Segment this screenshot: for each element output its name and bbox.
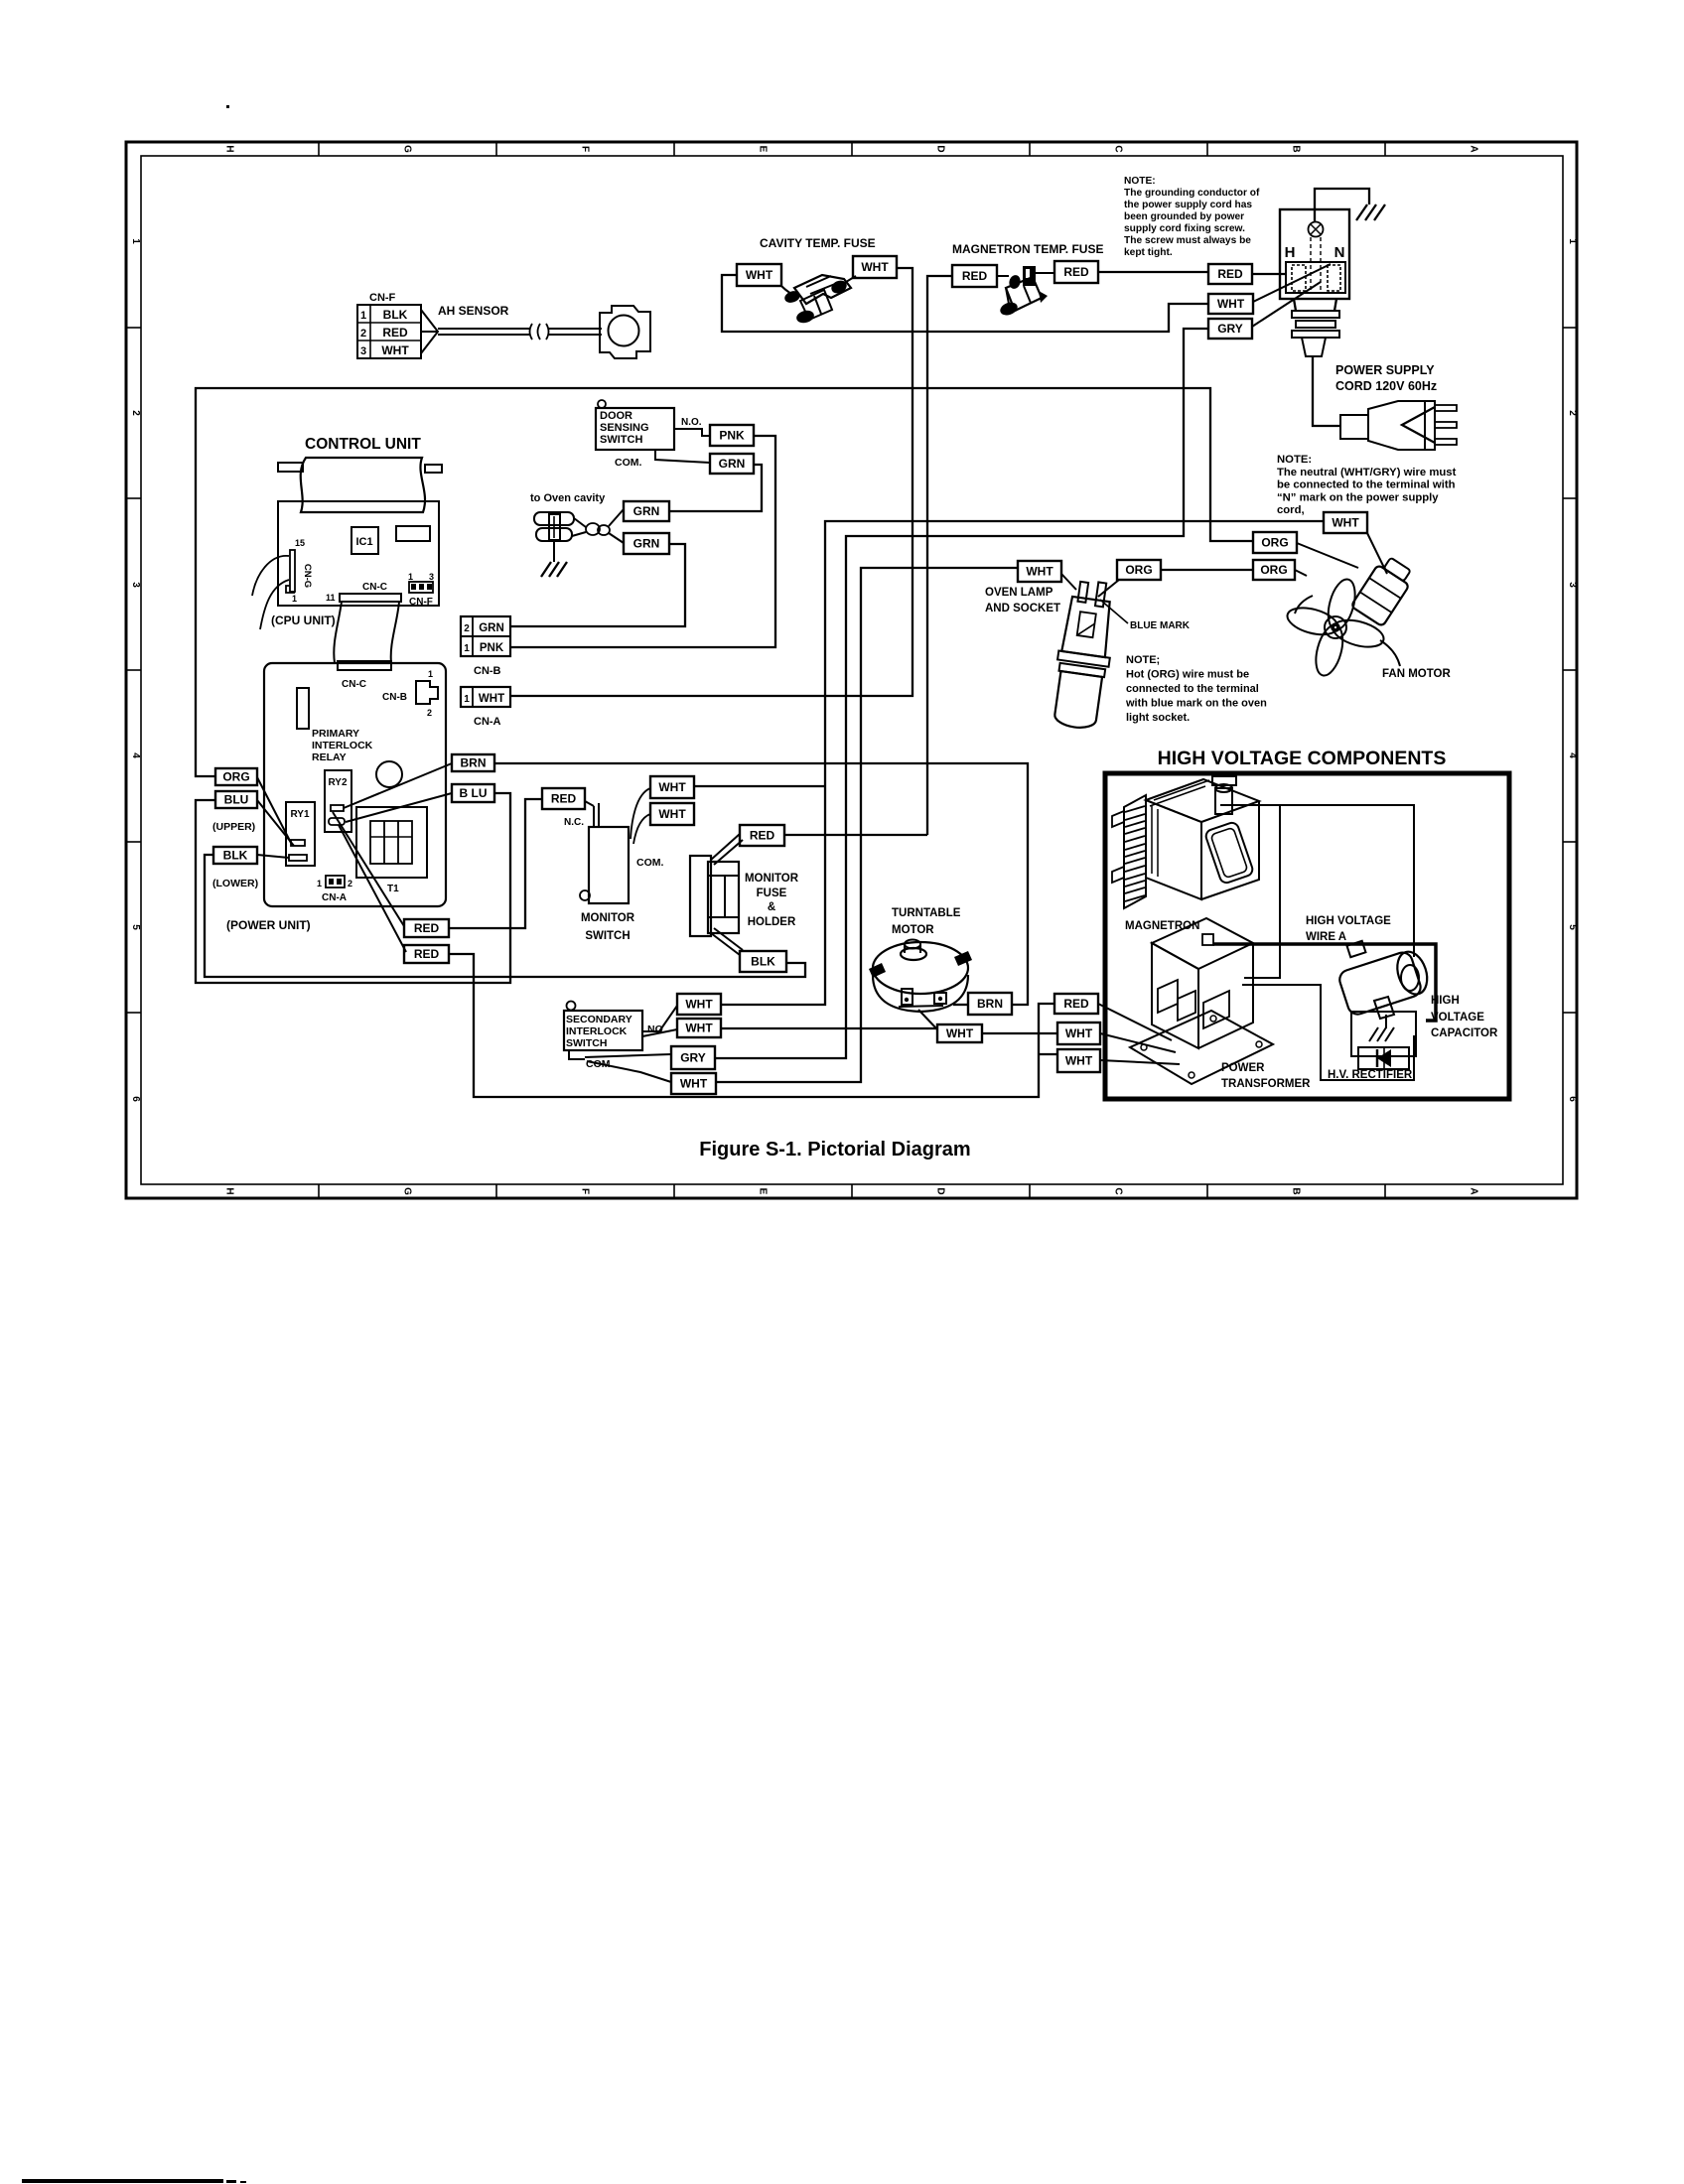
svg-text:MONITOR: MONITOR	[745, 873, 799, 885]
svg-text:POWER: POWER	[1221, 1062, 1265, 1074]
svg-text:5: 5	[130, 924, 141, 930]
svg-text:AND SOCKET: AND SOCKET	[985, 603, 1060, 614]
svg-text:H.V. RECTIFIER: H.V. RECTIFIER	[1328, 1069, 1413, 1081]
svg-text:CORD 120V 60Hz: CORD 120V 60Hz	[1335, 379, 1437, 393]
svg-text:MAGNETRON TEMP. FUSE: MAGNETRON TEMP. FUSE	[952, 242, 1103, 256]
svg-text:CN-G: CN-G	[302, 564, 313, 588]
svg-text:WHT: WHT	[746, 268, 773, 282]
svg-text:CAPACITOR: CAPACITOR	[1431, 1027, 1498, 1039]
svg-text:NOTE:: NOTE:	[1124, 176, 1156, 187]
svg-text:GRN: GRN	[633, 504, 660, 518]
svg-text:G: G	[402, 145, 413, 153]
svg-text:light socket.: light socket.	[1126, 712, 1190, 724]
svg-text:RED: RED	[1217, 267, 1243, 281]
svg-text:RY2: RY2	[328, 777, 348, 788]
svg-text:N.C.: N.C.	[564, 817, 584, 828]
svg-text:E: E	[758, 146, 769, 153]
svg-text:1: 1	[130, 238, 141, 244]
svg-text:The neutral (WHT/GRY) wire mus: The neutral (WHT/GRY) wire must	[1277, 467, 1457, 478]
svg-text:WHT: WHT	[1332, 516, 1359, 530]
svg-text:supply cord fixing screw.: supply cord fixing screw.	[1124, 223, 1245, 234]
svg-text:1: 1	[464, 694, 470, 705]
svg-text:11: 11	[326, 593, 336, 603]
svg-text:COM.: COM.	[636, 857, 663, 869]
svg-text:BLK: BLK	[383, 308, 408, 322]
svg-text:BLK: BLK	[223, 849, 248, 863]
svg-text:BLK: BLK	[751, 955, 775, 969]
svg-text:WHT: WHT	[685, 998, 713, 1012]
svg-text:FUSE: FUSE	[757, 887, 787, 899]
svg-text:(POWER UNIT): (POWER UNIT)	[226, 918, 311, 932]
svg-text:(CPU UNIT): (CPU UNIT)	[271, 614, 336, 627]
svg-text:WHT: WHT	[381, 343, 409, 357]
svg-text:SWITCH: SWITCH	[600, 434, 642, 446]
svg-text:“N” mark on the power sup: “N” mark on the power supply	[1277, 491, 1439, 503]
svg-text:RED: RED	[750, 829, 775, 843]
svg-text:RED: RED	[414, 947, 440, 961]
svg-text:1: 1	[464, 643, 470, 654]
svg-text:GRN: GRN	[719, 457, 746, 471]
svg-text:AH SENSOR: AH SENSOR	[438, 304, 509, 318]
svg-text:2: 2	[130, 410, 141, 416]
svg-text:1: 1	[317, 879, 322, 888]
svg-text:1: 1	[360, 310, 366, 322]
svg-text:B: B	[1291, 1187, 1302, 1194]
svg-text:CN-C: CN-C	[362, 582, 387, 593]
svg-text:5: 5	[1567, 924, 1578, 930]
svg-text:RED: RED	[1063, 997, 1089, 1011]
svg-text:ORG: ORG	[222, 770, 249, 784]
svg-text:RED: RED	[962, 269, 988, 283]
svg-text:WHT: WHT	[658, 780, 686, 794]
svg-text:ORG: ORG	[1260, 563, 1287, 577]
svg-text:2: 2	[427, 708, 432, 718]
svg-text:F: F	[580, 1188, 591, 1194]
svg-text:been grounded by power: been grounded by power	[1124, 211, 1244, 222]
svg-text:PRIMARY: PRIMARY	[312, 728, 359, 740]
svg-text:SECONDARY: SECONDARY	[566, 1014, 632, 1025]
svg-text:RED: RED	[1063, 265, 1089, 279]
svg-text:TRANSFORMER: TRANSFORMER	[1221, 1078, 1311, 1090]
svg-text:6: 6	[130, 1096, 141, 1102]
svg-text:B LU: B LU	[460, 786, 488, 800]
svg-text:RED: RED	[414, 921, 440, 935]
svg-text:WHT: WHT	[685, 1022, 713, 1035]
svg-text:4: 4	[130, 752, 141, 758]
svg-text:INTERLOCK: INTERLOCK	[566, 1025, 628, 1037]
svg-text:SWITCH: SWITCH	[585, 930, 630, 942]
svg-text:CAVITY TEMP. FUSE: CAVITY TEMP. FUSE	[760, 236, 876, 250]
svg-text:Figure S-1. Pictorial Diagram: Figure S-1. Pictorial Diagram	[699, 1139, 970, 1160]
svg-text:(UPPER): (UPPER)	[212, 821, 255, 833]
svg-text:CN-B: CN-B	[474, 665, 501, 677]
svg-text:HIGH VOLTAGE: HIGH VOLTAGE	[1306, 915, 1391, 927]
svg-text:(LOWER): (LOWER)	[212, 878, 258, 889]
svg-text:INTERLOCK: INTERLOCK	[312, 740, 373, 751]
svg-text:4: 4	[1567, 752, 1578, 758]
svg-text:WHT: WHT	[658, 807, 686, 821]
svg-text:A: A	[1469, 145, 1479, 152]
svg-text:3: 3	[360, 345, 366, 357]
svg-text:&: &	[768, 901, 775, 913]
svg-text:with blue mark on the oven: with blue mark on the oven	[1125, 698, 1267, 710]
svg-text:GRN: GRN	[633, 537, 660, 551]
svg-text:OVEN LAMP: OVEN LAMP	[985, 587, 1053, 599]
svg-text:to Oven cavity: to Oven cavity	[530, 492, 606, 504]
svg-text:1: 1	[292, 594, 297, 604]
svg-text:1: 1	[428, 669, 433, 679]
svg-text:TURNTABLE: TURNTABLE	[892, 907, 961, 919]
svg-text:HIGH: HIGH	[1431, 995, 1460, 1007]
svg-text:2: 2	[360, 328, 366, 340]
svg-text:2: 2	[348, 879, 352, 888]
svg-text:1: 1	[408, 572, 413, 582]
svg-text:CN-B: CN-B	[382, 692, 407, 703]
svg-text:connected to the terminal: connected to the terminal	[1126, 683, 1259, 695]
svg-text:BRN: BRN	[977, 997, 1003, 1011]
svg-text:3: 3	[429, 572, 434, 582]
svg-text:CN-F: CN-F	[409, 597, 433, 608]
svg-text:SWITCH: SWITCH	[566, 1037, 607, 1049]
svg-text:2: 2	[464, 623, 470, 634]
svg-text:CN-A: CN-A	[322, 892, 347, 903]
svg-text:PNK: PNK	[480, 642, 504, 654]
svg-text:BRN: BRN	[461, 756, 487, 770]
svg-text:PNK: PNK	[719, 429, 745, 443]
svg-text:POWER SUPPLY: POWER SUPPLY	[1335, 363, 1435, 377]
svg-text:be connected to the terminal w: be connected to the terminal with	[1277, 479, 1456, 491]
svg-text:WHT: WHT	[680, 1077, 708, 1091]
svg-text:ORG: ORG	[1261, 536, 1288, 550]
svg-text:CN-C: CN-C	[342, 679, 366, 690]
svg-text:NOTE:: NOTE:	[1277, 454, 1312, 466]
svg-text:RELAY: RELAY	[312, 751, 347, 763]
svg-text:D: D	[935, 1187, 946, 1194]
svg-text:The screw must always be: The screw must always be	[1124, 235, 1251, 246]
svg-text:cord,: cord,	[1277, 504, 1305, 516]
svg-text:H: H	[224, 1187, 235, 1194]
svg-text:HOLDER: HOLDER	[748, 916, 796, 928]
svg-text:The grounding conductor of: The grounding conductor of	[1124, 188, 1260, 199]
svg-text:F: F	[580, 146, 591, 152]
svg-text:1: 1	[1567, 238, 1578, 244]
svg-text:Hot (ORG) wire must be: Hot (ORG) wire must be	[1126, 669, 1249, 681]
svg-text:MONITOR: MONITOR	[581, 912, 635, 924]
svg-text:N: N	[1334, 244, 1345, 261]
svg-text:T1: T1	[387, 884, 399, 894]
svg-text:6: 6	[1567, 1096, 1578, 1102]
svg-text:C: C	[1113, 1187, 1124, 1194]
svg-text:D: D	[935, 145, 946, 152]
svg-text:RED: RED	[551, 792, 577, 806]
svg-text:H: H	[224, 145, 235, 152]
svg-text:COM.: COM.	[615, 457, 641, 469]
svg-text:IC1: IC1	[355, 536, 372, 548]
svg-text:RED: RED	[382, 326, 408, 340]
svg-text:2: 2	[1567, 410, 1578, 416]
svg-text:GRY: GRY	[680, 1051, 706, 1065]
svg-text:GRY: GRY	[1217, 322, 1243, 336]
svg-text:B: B	[1291, 145, 1302, 152]
svg-text:MOTOR: MOTOR	[892, 924, 934, 936]
svg-text:WHT: WHT	[1065, 1054, 1093, 1068]
svg-text:DOOR: DOOR	[600, 410, 632, 422]
svg-text:WHT: WHT	[1217, 297, 1245, 311]
svg-text:H: H	[1285, 244, 1296, 261]
svg-text:3: 3	[1567, 582, 1578, 588]
svg-text:WHT: WHT	[1026, 565, 1053, 579]
svg-text:E: E	[758, 1188, 769, 1195]
svg-text:HIGH VOLTAGE COMPONENTS: HIGH VOLTAGE COMPONENTS	[1158, 748, 1447, 769]
svg-text:BLU: BLU	[224, 793, 249, 807]
svg-text:RY1: RY1	[290, 809, 310, 820]
svg-text:GRN: GRN	[479, 622, 504, 634]
svg-text:WHT: WHT	[1065, 1026, 1093, 1040]
svg-text:WHT: WHT	[861, 260, 889, 274]
svg-text:WHT: WHT	[946, 1026, 974, 1040]
svg-text:VOLTAGE: VOLTAGE	[1431, 1012, 1484, 1024]
svg-text:ORG: ORG	[1125, 563, 1152, 577]
svg-text:the power supply cord has: the power supply cord has	[1124, 200, 1252, 210]
svg-text:kept tight.: kept tight.	[1124, 247, 1173, 258]
svg-text:A: A	[1469, 1187, 1479, 1194]
svg-text:CN-F: CN-F	[369, 292, 396, 304]
svg-text:N.O.: N.O.	[681, 417, 702, 428]
svg-text:WIRE A: WIRE A	[1306, 931, 1346, 943]
svg-text:SENSING: SENSING	[600, 422, 649, 434]
svg-text:CN-A: CN-A	[474, 716, 501, 728]
svg-text:WHT: WHT	[479, 693, 504, 705]
svg-text:FAN MOTOR: FAN MOTOR	[1382, 668, 1451, 680]
svg-text:C: C	[1113, 145, 1124, 152]
svg-text:3: 3	[130, 582, 141, 588]
svg-text:G: G	[402, 1187, 413, 1195]
svg-text:15: 15	[295, 538, 305, 548]
svg-text:CONTROL UNIT: CONTROL UNIT	[305, 436, 421, 453]
svg-text:BLUE MARK: BLUE MARK	[1130, 620, 1191, 631]
svg-text:NOTE;: NOTE;	[1126, 654, 1160, 666]
